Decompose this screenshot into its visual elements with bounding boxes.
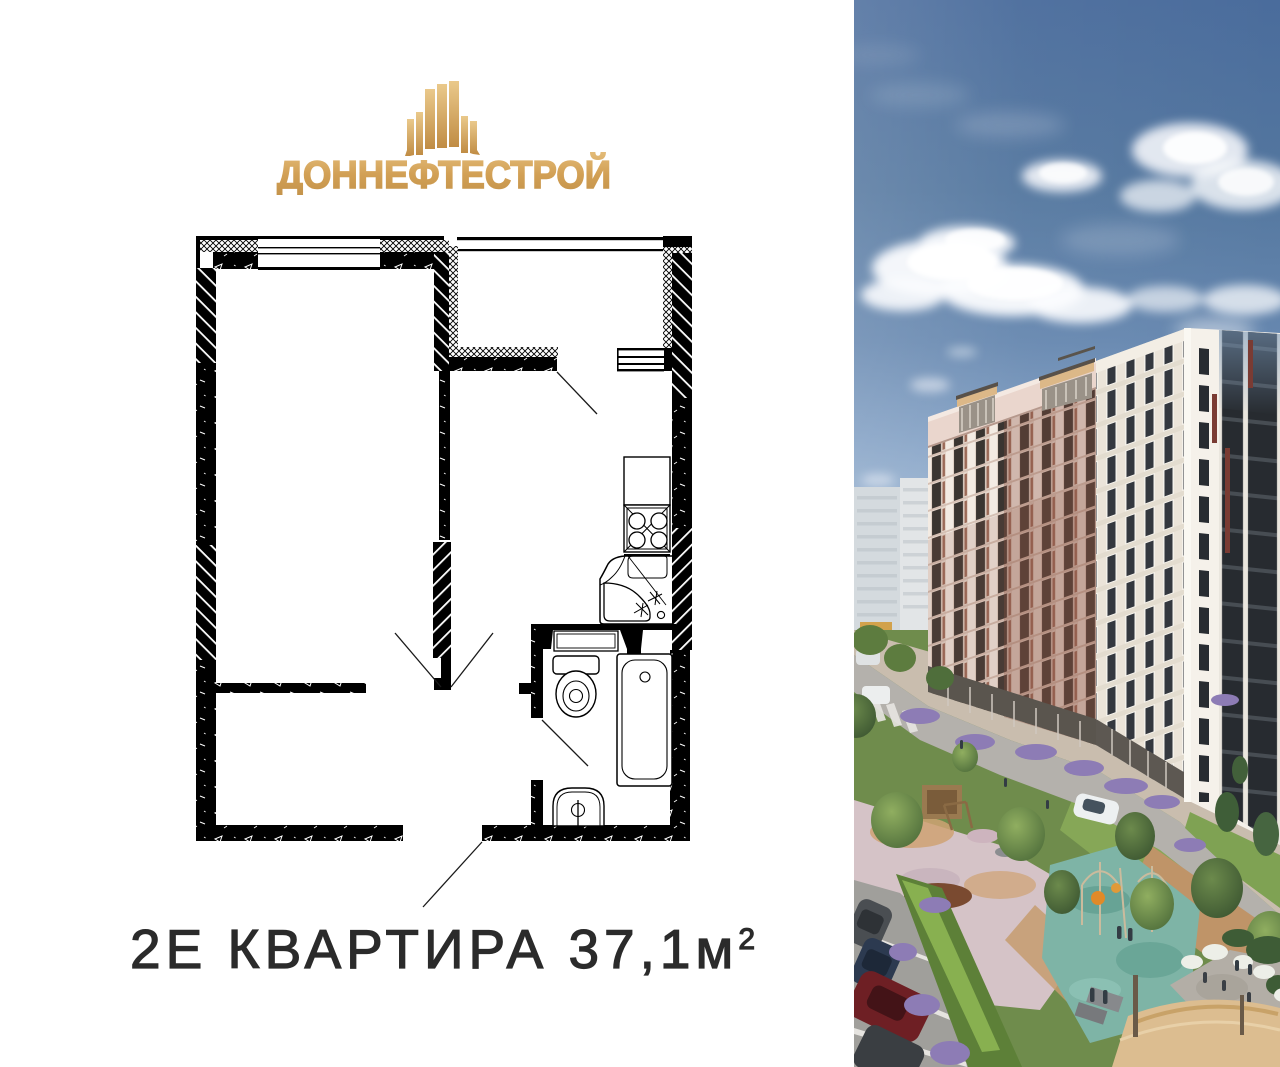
svg-text:ДОННЕФТЕСТРОЙ: ДОННЕФТЕСТРОЙ [277,152,611,195]
